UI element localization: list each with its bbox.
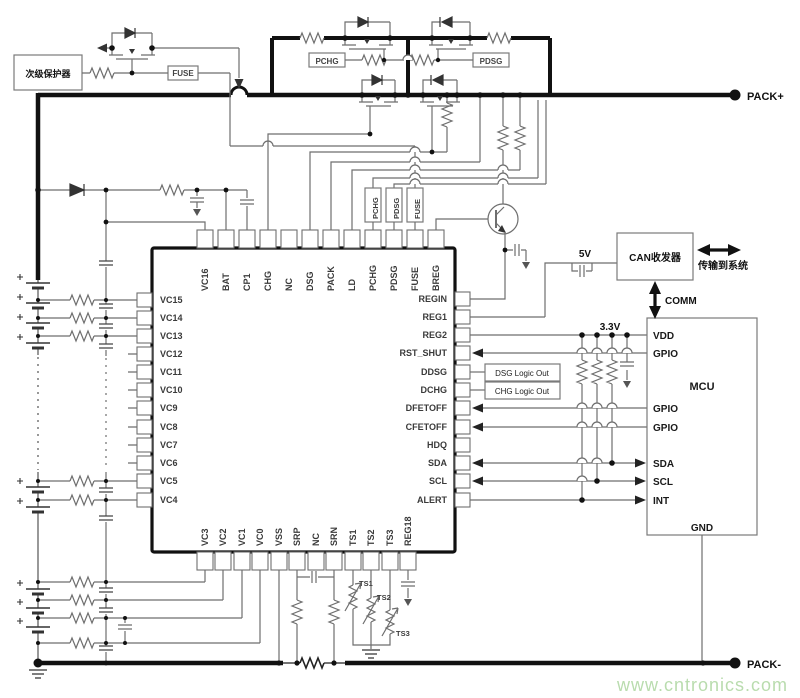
wire [447, 95, 520, 204]
fet-arrow-icon [364, 39, 370, 44]
pin-label: BAT [221, 273, 231, 291]
fet-arrow-icon [129, 49, 135, 54]
pin-label: DDSG [421, 367, 447, 377]
chg-logic-out-label: CHG Logic Out [495, 387, 550, 396]
pin-label: VSS [274, 528, 284, 546]
pin-label: NC [311, 533, 321, 546]
pin-label: TS1 [348, 529, 358, 546]
diode-icon [431, 75, 443, 85]
dsg-logic-out-label: DSG Logic Out [495, 369, 550, 378]
bms-schematic: VC16 BAT CP1 CHG NC DSG PACK LD PCHG PDS… [0, 0, 800, 698]
pin-label: VC0 [255, 528, 265, 546]
mcu-label: MCU [689, 381, 714, 393]
schematic-canvas: VC16 BAT CP1 CHG NC DSG PACK LD PCHG PDS… [0, 0, 800, 698]
ts3-wire [371, 570, 390, 645]
fuse-box-label: FUSE [172, 69, 194, 78]
pack-minus-terminal: PACK- [747, 659, 781, 671]
pin-label: SCL [429, 476, 448, 486]
ts1-label: TS1 [359, 579, 373, 588]
pin-label: REG18 [403, 516, 413, 546]
pin-label: TS2 [366, 529, 376, 546]
pin-label: REG1 [422, 312, 447, 322]
pin-label: VC15 [160, 295, 183, 305]
diode-icon [440, 17, 452, 27]
pin-label: DCHG [421, 385, 448, 395]
npn-transistor [470, 204, 530, 299]
5v-cap [572, 263, 592, 271]
pin-label: BREG [431, 265, 441, 291]
fet-arrow-icon [375, 96, 381, 101]
can-transceiver-label: CAN收发器 [629, 251, 682, 264]
into-mcu-arrowheads [635, 459, 646, 505]
5v-label: 5V [579, 249, 592, 260]
pin-label: VC2 [218, 528, 228, 546]
pin-label: TS3 [385, 529, 395, 546]
pin-label: VC13 [160, 331, 183, 341]
pin-label: PACK [326, 266, 336, 291]
ic-body [152, 248, 455, 552]
into-ic-arrowheads [472, 349, 483, 486]
pin-label: RST_SHUT [399, 348, 447, 358]
pchg-fet-label: PCHG [315, 57, 338, 66]
cell-sense-rows [38, 295, 137, 505]
pin-label: SDA [428, 458, 448, 468]
left-arrowhead-icon [97, 44, 107, 53]
wire [373, 222, 415, 230]
pin-label: DSG [305, 271, 315, 291]
mcu-pin-label: GPIO [653, 404, 678, 415]
pin-label: VC4 [160, 495, 178, 505]
pin-label: FUSE [410, 267, 420, 291]
pin-label: PCHG [368, 265, 378, 291]
mcu-pin-label: SDA [653, 459, 674, 470]
to-system-label: 传输到系统 [697, 259, 748, 272]
fet-body-diode-loop [112, 33, 152, 48]
fuse-net-label: FUSE [413, 199, 422, 219]
comm-label: COMM [665, 296, 697, 307]
pchg-net-run [373, 100, 538, 188]
ts3-label: TS3 [396, 629, 410, 638]
chg-fet [359, 80, 398, 134]
lower-sense-rows [38, 570, 260, 648]
pin-label: NC [284, 278, 294, 291]
reg1-5v-wire [470, 263, 617, 317]
mcu-pin-label: INT [653, 496, 669, 507]
ts2-label: TS2 [377, 593, 391, 602]
pchg-net-label: PCHG [371, 197, 380, 219]
pin-label: VC16 [200, 268, 210, 291]
diode-icon [372, 75, 382, 85]
pin-label: CP1 [242, 273, 252, 291]
comm-arrow [649, 281, 661, 319]
ic-top-pin-wires [38, 100, 546, 230]
mcu-pin-label: GPIO [653, 423, 678, 434]
pin-label: CHG [263, 271, 273, 291]
pin-label: VC3 [200, 528, 210, 546]
afe-ic: VC16 BAT CP1 CHG NC DSG PACK LD PCHG PDS… [137, 230, 470, 570]
pdsg-fet-label: PDSG [480, 57, 503, 66]
pin-label: ALERT [417, 495, 447, 505]
secondary-protector-label: 次级保护器 [25, 68, 71, 79]
mcu-pin-label: GPIO [653, 349, 678, 360]
pin-label: DFETOFF [406, 403, 448, 413]
to-system-arrow [697, 244, 741, 256]
mcu-pin-label: VDD [653, 331, 674, 342]
fuse-drive-wire [198, 73, 415, 188]
pin-label: REG2 [422, 330, 447, 340]
secondary-protection-block [14, 28, 415, 188]
pullup-verticals [582, 335, 627, 500]
pin-label: SRN [329, 527, 339, 546]
chg-gate-run [268, 134, 370, 230]
pin-label: VC1 [237, 528, 247, 546]
pin-label: VC7 [160, 440, 178, 450]
pin-label: REGIN [418, 294, 447, 304]
pack-run [331, 162, 480, 230]
mcu-gnd-label: GND [691, 523, 713, 534]
pin-label: VC9 [160, 403, 178, 413]
vc16-wire [106, 222, 205, 230]
pdsg-net-label: PDSG [392, 198, 401, 219]
pin-label: VC8 [160, 422, 178, 432]
pin-label: VC11 [160, 367, 182, 377]
pin-label: CFETOFF [406, 422, 448, 432]
diode-icon [358, 17, 368, 27]
mcu-pin-label: SCL [653, 477, 673, 488]
pack-plus-terminal: PACK+ [747, 91, 784, 103]
pin-label: VC14 [160, 313, 183, 323]
breg-wire [436, 219, 488, 230]
pin-label: HDQ [427, 440, 447, 450]
pin-label: LD [347, 279, 357, 291]
fet-arrow-icon [448, 39, 454, 44]
bat-wire [38, 190, 247, 230]
pin-label: VC6 [160, 458, 178, 468]
dsg-fet [420, 80, 460, 152]
bottom-network [279, 570, 415, 668]
pin-label: VC5 [160, 476, 178, 486]
pin-label: PDSG [389, 265, 399, 291]
pin-label: SRP [292, 527, 302, 546]
fet-arrow-icon [437, 96, 443, 101]
pin-label: VC12 [160, 349, 183, 359]
diode-icon [70, 184, 84, 196]
pin-label: VC10 [160, 385, 183, 395]
33v-label: 3.3V [600, 322, 621, 333]
watermark: www.cntronics.com [616, 675, 788, 695]
diode-icon [125, 28, 135, 38]
emitter-wire [470, 232, 505, 299]
